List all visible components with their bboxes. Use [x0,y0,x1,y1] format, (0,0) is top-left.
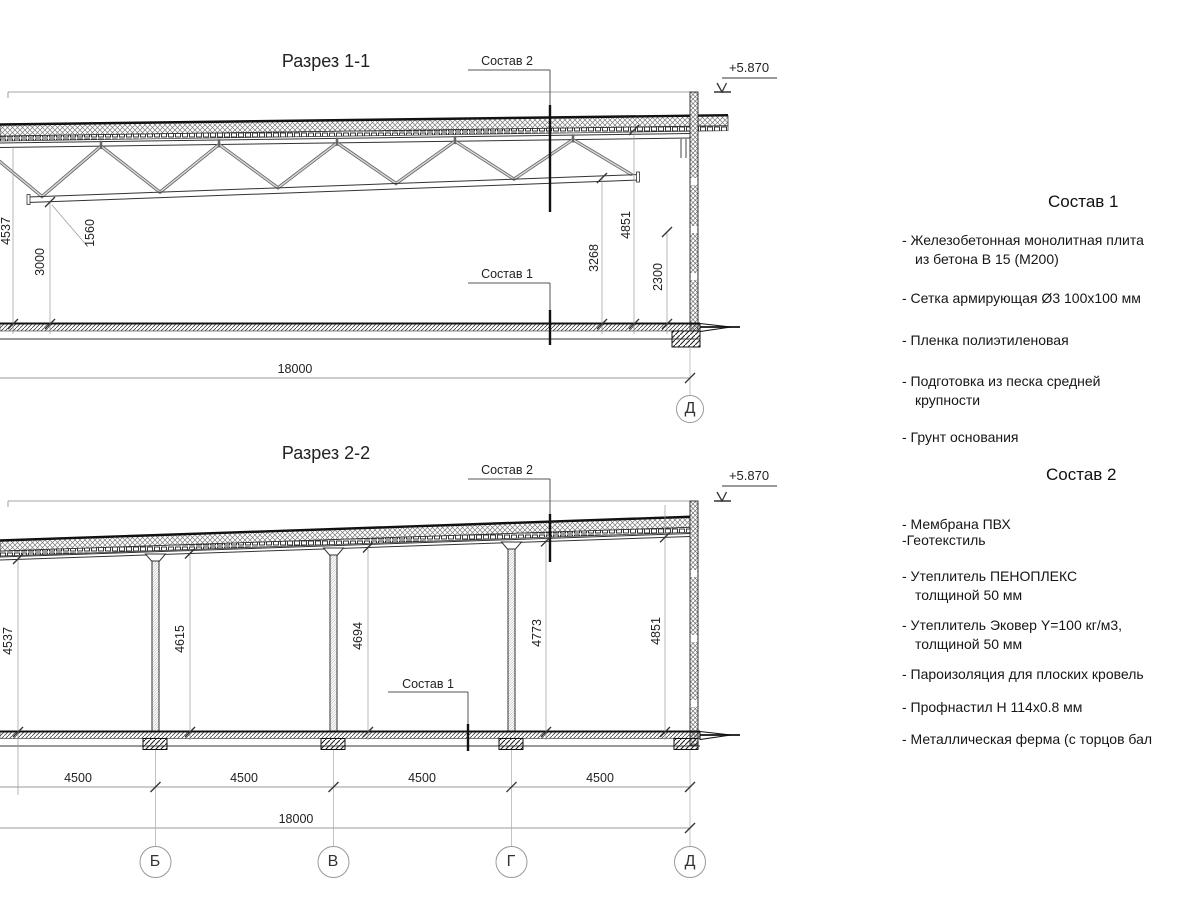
section1-roof [0,115,728,147]
composition2-item-3: - Утеплитель Эковер Y=100 кг/м3, толщино… [902,616,1200,654]
section2-axis-g: Г [496,853,526,871]
section1-dim-4537: 4537 [0,196,13,266]
section2-elevation-label: +5.870 [714,469,784,484]
section2-floor [0,732,740,750]
composition1-heading: Состав 1 [1048,192,1119,212]
composition2-item-1-line1: - Мембрана ПВХ [902,516,1200,532]
section1-composition1-callout: Состав 1 [462,267,552,281]
section2-axis-d: Д [675,853,705,871]
section1-elevation-label: +5.870 [714,61,784,76]
composition2-item-2: - Утеплитель ПЕНОПЛЕКС толщиной 50 мм [902,567,1200,605]
composition1-item-4-line2: крупности [902,391,1200,410]
section1-callout-leaders [468,70,550,345]
section1-wall [690,92,698,331]
composition2-item-3-line2: толщиной 50 мм [902,635,1200,654]
section1-axis-label: Д [675,400,705,418]
section2-composition1-callout: Состав 1 [383,677,473,691]
composition1-item-4: - Подготовка из песка средней крупности [902,372,1200,410]
composition1-item-5: - Грунт основания [902,428,1200,447]
section2-axis-bubbles [140,847,706,878]
composition2-item-1: - Мембрана ПВХ -Геотекстиль [902,516,1200,548]
composition1-item-4-line1: - Подготовка из песка средней [902,372,1200,391]
composition2-item-5: - Профнастил Н 114х0.8 мм [902,698,1200,717]
section1-footing [672,331,700,347]
composition2-heading: Состав 2 [1046,465,1117,485]
composition2-item-4-line1: - Пароизоляция для плоских кровель [902,665,1200,684]
composition2-item-2-line2: толщиной 50 мм [902,586,1200,605]
section2-roof [0,517,698,561]
section2-bay-dim-3: 4500 [392,771,452,785]
section2-elevation-mark [714,486,777,501]
drawing-linework [0,0,1200,900]
composition1-item-3-line1: - Пленка полиэтиленовая [902,331,1200,350]
section1-dim-3268: 3268 [587,223,601,293]
section1-composition2-callout: Состав 2 [462,54,552,68]
section1-dim-3000: 3000 [33,227,47,297]
section1-dim-18000: 18000 [255,362,335,376]
composition1-item-5-line1: - Грунт основания [902,428,1200,447]
composition1-item-1-line1: - Железобетонная монолитная плита [902,231,1200,250]
composition2-item-3-line1: - Утеплитель Эковер Y=100 кг/м3, [902,616,1200,635]
section2-bay-dim-4: 4500 [570,771,630,785]
composition1-item-3: - Пленка полиэтиленовая [902,331,1200,350]
section2-callout-leaders [388,479,550,751]
section2-dim-18000: 18000 [256,812,336,826]
section1-dim-4851: 4851 [619,190,633,260]
composition2-item-4: - Пароизоляция для плоских кровель [902,665,1200,684]
composition1-item-1-line2: из бетона В 15 (М200) [902,250,1200,269]
section2-title: Разрез 2-2 [266,443,386,464]
section2-dim-ticks [13,532,695,833]
section2-dim-4851: 4851 [649,596,663,666]
section2-dim-4694: 4694 [351,601,365,671]
section2-dim-4615: 4615 [173,604,187,674]
composition2-item-5-line1: - Профнастил Н 114х0.8 мм [902,698,1200,717]
section1-floor [0,324,740,348]
section2-bay-dim-1: 4500 [48,771,108,785]
section2-wall [690,501,698,745]
composition2-item-6: - Металлическая ферма (с торцов бал [902,730,1200,749]
section1-elevation-mark [714,78,777,92]
drawing-sheet: Разрез 1-1 Состав 2 Состав 1 +5.870 4537… [0,0,1200,900]
composition2-item-2-line1: - Утеплитель ПЕНОПЛЕКС [902,567,1200,586]
section1-truss [0,134,686,204]
composition1-item-1: - Железобетонная монолитная плита из бет… [902,231,1200,269]
section2-composition2-callout: Состав 2 [462,463,552,477]
section2-bay-dim-2: 4500 [214,771,274,785]
section2-dim-4773: 4773 [530,598,544,668]
composition2-item-6-line1: - Металлическая ферма (с торцов бал [902,730,1200,749]
section2-columns [146,542,522,732]
composition2-item-1-line2: -Геотекстиль [902,532,1200,548]
composition1-item-2: - Сетка армирующая Ø3 100х100 мм [902,289,1200,308]
section1-title: Разрез 1-1 [266,51,386,72]
composition1-item-2-line1: - Сетка армирующая Ø3 100х100 мм [902,289,1200,308]
section1-dim-1560: 1560 [83,198,97,268]
section2-axis-b: Б [140,853,170,871]
section2-axis-v: В [318,853,348,871]
section2-dim-4537: 4537 [1,606,15,676]
section1-dim-2300: 2300 [651,242,665,312]
